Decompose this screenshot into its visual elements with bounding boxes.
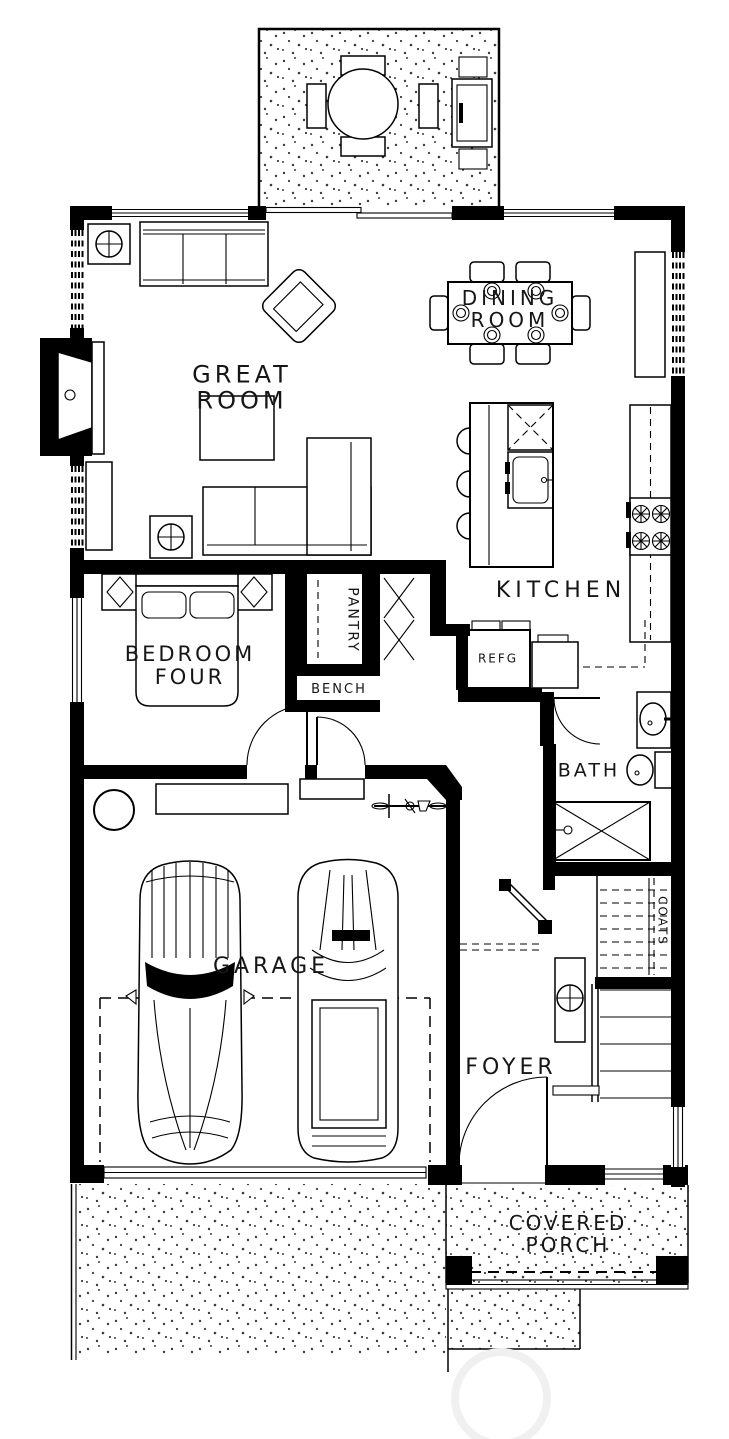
counter-by-refrigerator <box>532 635 578 688</box>
water-heater <box>94 790 134 830</box>
fireplace <box>40 338 104 456</box>
stool <box>457 513 470 539</box>
lamp-icon <box>96 231 122 257</box>
kitchen-island <box>470 403 553 567</box>
car-sedan <box>126 861 254 1164</box>
armchair <box>259 266 338 345</box>
patio-deck <box>259 29 499 208</box>
porch-post <box>656 1256 688 1284</box>
lamp-icon <box>158 524 184 550</box>
watermark-circle <box>451 1348 551 1439</box>
vanity-sink <box>637 692 672 748</box>
sofa <box>140 222 268 286</box>
window-seat <box>86 462 112 550</box>
front-door <box>459 1077 547 1165</box>
foyer-furniture <box>460 879 585 1042</box>
driveway <box>72 1184 447 1360</box>
stool <box>457 471 470 497</box>
window-dining-hatched <box>671 252 685 376</box>
dining-room-furniture <box>430 252 665 377</box>
refrigerator <box>467 621 530 688</box>
shower <box>553 802 650 860</box>
garage-step <box>300 779 364 799</box>
bath-fixtures <box>553 692 672 860</box>
great-room-furniture <box>86 222 371 558</box>
stool <box>457 428 470 454</box>
garage-entry-door <box>317 717 365 765</box>
window-bedroom <box>70 598 84 702</box>
bed <box>136 574 238 706</box>
patio-slider-door <box>264 206 452 220</box>
bedroom-door <box>247 705 307 765</box>
toilet <box>627 752 672 788</box>
garage-contents <box>94 779 448 1178</box>
pantry-bifold-doors <box>384 578 414 660</box>
car-truck <box>298 860 398 1163</box>
window-stair-side <box>671 1107 685 1167</box>
window-front <box>605 1165 663 1185</box>
bicycle <box>372 794 448 818</box>
porch-post <box>446 1256 472 1284</box>
kitchen-fixtures <box>457 403 671 688</box>
window-left-hatched-upper <box>70 230 84 328</box>
coffee-table <box>200 396 274 460</box>
covered-porch-floor <box>446 1183 688 1289</box>
coats-closet <box>597 876 668 977</box>
workbench <box>156 784 288 814</box>
window-top-left <box>112 206 248 220</box>
range-cooktop <box>626 498 671 555</box>
floor-plan: GREAT ROOM DINING ROOM KITCHEN BEDROOM F… <box>0 0 729 1439</box>
sectional-sofa <box>203 438 371 555</box>
window-top-right <box>504 206 614 220</box>
lamp-icon <box>557 985 583 1011</box>
dining-table <box>448 282 572 344</box>
window-left-hatched-lower <box>70 466 84 548</box>
bedroom-furniture <box>102 574 272 706</box>
buffet <box>635 252 665 377</box>
bath-door <box>554 698 600 744</box>
floorplan-canvas <box>0 0 729 1439</box>
